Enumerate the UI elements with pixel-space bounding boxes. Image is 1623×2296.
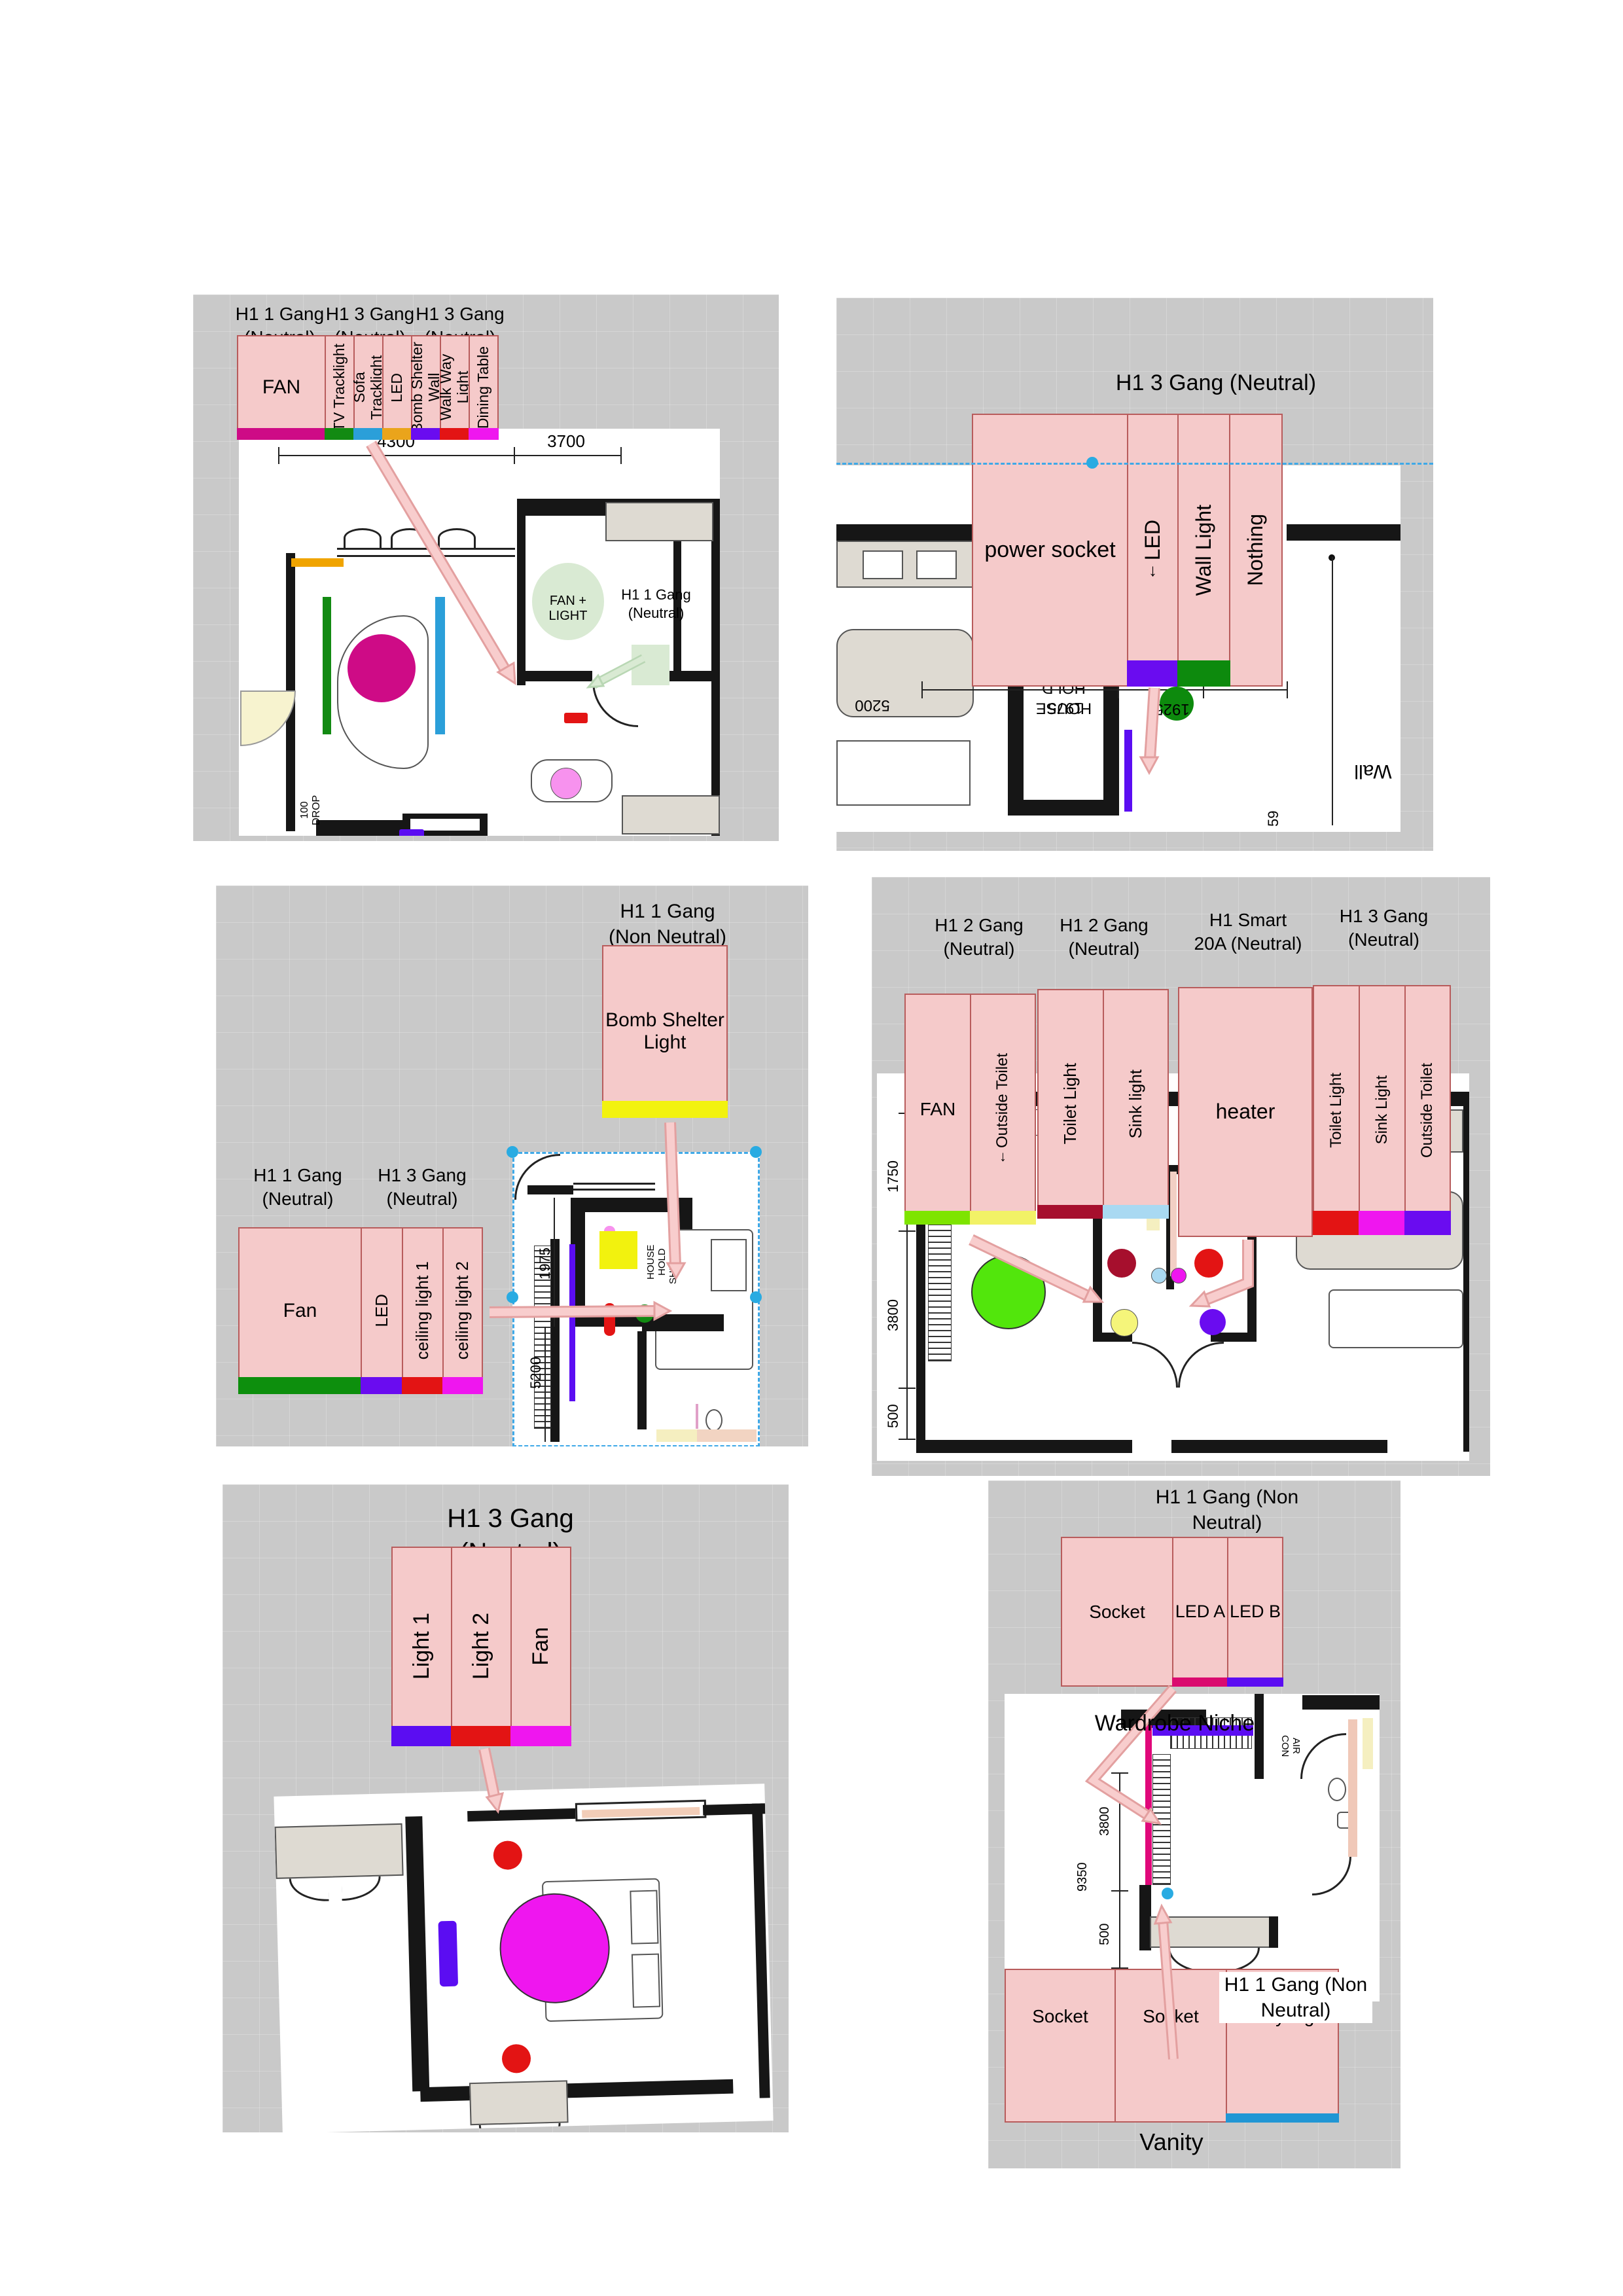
dim-5200: 5200 bbox=[843, 696, 902, 714]
gang-label: Sofa Tracklight bbox=[351, 340, 385, 435]
gang-label: heater bbox=[1216, 1100, 1275, 1124]
switch-box-heater: heater bbox=[1178, 987, 1313, 1237]
furniture-desk bbox=[1150, 1916, 1275, 1948]
gang-note-label: H1 1 Gang (Neutral) bbox=[609, 586, 704, 622]
gang-label: Nothing bbox=[1244, 514, 1268, 586]
gang-color-bar bbox=[1037, 1205, 1104, 1219]
gang-color-bar bbox=[237, 428, 326, 440]
gang-fan[interactable]: Fan bbox=[510, 1547, 571, 1746]
gang-color-bar bbox=[904, 1211, 971, 1225]
gang-label: Dining Table bbox=[475, 346, 492, 429]
drop-label: 100 DROP bbox=[299, 785, 325, 834]
dimension-tick bbox=[1287, 681, 1288, 698]
selection-guide-line[interactable] bbox=[836, 463, 1433, 465]
group-title: H1 3 Gang (Neutral) bbox=[363, 1164, 481, 1211]
furniture-console bbox=[469, 2080, 569, 2125]
appliance bbox=[916, 550, 957, 579]
gang-socket[interactable]: Socket bbox=[1061, 1537, 1173, 1687]
wall-label: Wall bbox=[1347, 760, 1399, 782]
dimension-tick bbox=[620, 447, 622, 464]
marker-magenta-circle[interactable] bbox=[348, 634, 416, 702]
gang-walk-way-light[interactable]: Walk Way Light bbox=[440, 335, 470, 440]
gang-label: Socket bbox=[1089, 1602, 1145, 1622]
group-title-text: H1 1 Gang (Non Neutral) bbox=[1219, 1972, 1372, 2023]
window-band bbox=[337, 548, 515, 557]
gang-label: Walk Way Light bbox=[438, 340, 472, 435]
down-arrow-icon: ↓ bbox=[1149, 560, 1157, 581]
panel-vanity: H1 1 Gang (Non Neutral) Socket LED A LED… bbox=[988, 1480, 1400, 2168]
marker-yellow-square[interactable] bbox=[599, 1231, 637, 1269]
gang-label: FAN bbox=[262, 376, 300, 399]
marker-purple-bar[interactable] bbox=[1124, 730, 1132, 812]
gang-label: Sink Light bbox=[1374, 1075, 1391, 1144]
gang-label: LED bbox=[372, 1294, 391, 1327]
selection-handle[interactable] bbox=[750, 1291, 762, 1303]
gang-label: power socket bbox=[984, 537, 1115, 562]
gang-toilet-light[interactable]: Toilet Light bbox=[1037, 989, 1104, 1219]
fixture-toilet bbox=[705, 1409, 722, 1431]
switch-box-d: Toilet Light Sink Light Outside Toilet bbox=[1313, 985, 1451, 1235]
marker-red-circle[interactable] bbox=[501, 2044, 531, 2073]
dimension-line bbox=[278, 455, 622, 456]
gang-label: LED bbox=[389, 373, 406, 403]
door-arc bbox=[1132, 1342, 1178, 1388]
floor-plan: 4300 3700 FAN + LIGHT H1 1 Gang (Neutr bbox=[239, 429, 720, 836]
dim-5200: 5200 bbox=[527, 1337, 547, 1409]
selection-handle[interactable] bbox=[507, 1146, 518, 1158]
marker-yellow-circle[interactable] bbox=[1111, 1309, 1138, 1336]
curtain-arc bbox=[525, 2123, 562, 2132]
switch-box-top: Socket LED A LED B bbox=[1061, 1537, 1283, 1687]
wall bbox=[563, 2079, 733, 2098]
gang-sofa-tracklight[interactable]: Sofa Tracklight bbox=[353, 335, 383, 440]
gang-power-socket[interactable]: power socket bbox=[972, 414, 1128, 687]
gang-fan[interactable]: FAN bbox=[904, 994, 971, 1225]
window-arc bbox=[391, 528, 429, 548]
dim-1975: 1975 bbox=[1036, 698, 1095, 717]
marker-blue-dot[interactable] bbox=[1162, 1888, 1173, 1899]
marker-purple-circle[interactable] bbox=[1200, 1309, 1226, 1335]
marker-red-circle[interactable] bbox=[493, 1840, 522, 1870]
furniture-bed bbox=[1329, 1289, 1463, 1348]
marker-lightblue-circle[interactable] bbox=[1151, 1268, 1167, 1283]
gang-label: Toilet Light bbox=[1328, 1073, 1346, 1148]
window-arc bbox=[344, 528, 382, 548]
gang-label: Socket bbox=[1032, 2006, 1088, 2026]
gang-label: Wall Light bbox=[1192, 505, 1216, 596]
marker-purple-bar[interactable] bbox=[569, 1244, 575, 1401]
bathroom-strip bbox=[1348, 1719, 1357, 1857]
group-title: H1 3 Gang (Neutral) bbox=[1095, 368, 1337, 397]
gang-color-bar bbox=[442, 1377, 483, 1394]
furniture-pillow bbox=[711, 1239, 747, 1291]
gang-color-bar bbox=[361, 1377, 403, 1394]
dim-3800: 3800 bbox=[885, 1283, 903, 1348]
wall bbox=[517, 499, 526, 685]
gang-color-bar bbox=[1172, 1677, 1228, 1687]
dim-500: 500 bbox=[885, 1397, 903, 1435]
group-title: H1 3 Gang (Neutral) bbox=[1327, 905, 1441, 952]
gang-label: Socket bbox=[1143, 2006, 1199, 2026]
floor-plan-selected[interactable]: HOUSE HOLD SHELTER 1975 5200 bbox=[512, 1152, 760, 1446]
dim-59: 59 bbox=[1265, 802, 1286, 832]
furniture-cabinet bbox=[836, 740, 971, 806]
panel-bedroom3: H1 2 Gang (Neutral) H1 2 Gang (Neutral) … bbox=[872, 877, 1490, 1476]
dimension-tick bbox=[899, 1439, 916, 1440]
wall bbox=[1302, 1695, 1380, 1710]
group-title: H1 Smart 20A (Neutral) bbox=[1186, 908, 1310, 956]
gang-sink-light[interactable]: Sink light bbox=[1103, 989, 1169, 1219]
gang-toilet-light-2[interactable]: Toilet Light bbox=[1313, 985, 1360, 1235]
switch-box: power socket LED ↓ Wall Light Nothing bbox=[972, 414, 1283, 687]
gang-label: Bomb Shelter Light bbox=[605, 1009, 724, 1053]
switch-box: FAN TV Tracklight Sofa Tracklight LED Bo… bbox=[237, 335, 499, 440]
marker-green-bar[interactable] bbox=[323, 597, 331, 734]
furniture-pillow bbox=[630, 1890, 658, 1945]
aircon-label: AIR CON bbox=[1279, 1720, 1302, 1772]
panel-living-room: H1 1 Gang (Neutral) H1 3 Gang (Neutral) … bbox=[193, 295, 779, 841]
marker-magenta-circle[interactable] bbox=[1171, 1268, 1186, 1283]
marker-maroon-circle[interactable] bbox=[1107, 1249, 1136, 1278]
gang-label: Light 1 bbox=[409, 1613, 434, 1679]
gang-color-bar bbox=[1103, 1205, 1169, 1219]
gang-ceiling-light-2[interactable]: ceiling light 2 bbox=[442, 1227, 483, 1394]
gang-label: LED A bbox=[1175, 1602, 1226, 1621]
dimension-tick bbox=[278, 447, 279, 464]
door-arc bbox=[1312, 1856, 1351, 1895]
wall bbox=[1255, 1694, 1264, 1779]
gang-color-bar bbox=[1227, 1677, 1283, 1687]
bathroom-strip-yellow bbox=[1363, 1718, 1373, 1769]
page: H1 1 Gang (Neutral) H1 3 Gang (Neutral) … bbox=[0, 0, 1623, 2296]
wall bbox=[405, 1816, 429, 2092]
group-title-bottom: H1 1 Gang (Non Neutral) bbox=[1198, 1946, 1394, 2023]
curtain-arc bbox=[479, 2124, 516, 2132]
switch-box: Fan LED ceiling light 1 ceiling light 2 bbox=[238, 1227, 483, 1394]
gang-heater[interactable]: heater bbox=[1178, 987, 1313, 1237]
gang-color-bar bbox=[1404, 1211, 1451, 1235]
dimension-line bbox=[921, 689, 1288, 691]
panel-entry: H1 3 Gang (Neutral) HOUSE HOLD SHELTER 1… bbox=[836, 298, 1433, 851]
gang-color-bar bbox=[353, 428, 383, 440]
gang-label: LED bbox=[1141, 520, 1165, 560]
door-arc bbox=[514, 1154, 560, 1200]
door-arc bbox=[592, 681, 638, 727]
gang-label: Fan bbox=[283, 1300, 317, 1322]
window-arc bbox=[438, 528, 476, 548]
wall bbox=[642, 1314, 724, 1331]
gang-label: FAN bbox=[920, 1099, 955, 1119]
dimension-tick bbox=[899, 1230, 916, 1232]
group-title: H1 2 Gang (Neutral) bbox=[927, 914, 1031, 961]
dimension-tick bbox=[921, 681, 923, 698]
dimension-tick bbox=[1111, 1890, 1128, 1892]
dim-1925: 1925 bbox=[1143, 700, 1202, 718]
switch-box: Light 1 Light 2 Fan bbox=[391, 1547, 571, 1746]
dimension-tick bbox=[514, 447, 515, 464]
gang-color-bar bbox=[1226, 2113, 1339, 2123]
gang-fan[interactable]: Fan bbox=[238, 1227, 362, 1394]
window-band bbox=[573, 1183, 655, 1191]
marker-purple-rect[interactable] bbox=[399, 829, 424, 836]
gang-sink-light-2[interactable]: Sink Light bbox=[1359, 985, 1406, 1235]
gang-color-bar bbox=[391, 1726, 452, 1746]
gang-light-2[interactable]: Light 2 bbox=[451, 1547, 512, 1746]
gang-color-bar bbox=[411, 428, 441, 440]
gang-label: TV Tracklight bbox=[331, 344, 348, 431]
gang-label: ceiling light 1 bbox=[413, 1261, 432, 1359]
gang-outside-toilet[interactable]: Outside Toilet ↓ bbox=[970, 994, 1036, 1225]
shelter-label: HOUSE HOLD SHELTER bbox=[645, 1219, 668, 1304]
gang-color-bar bbox=[602, 1101, 728, 1118]
selection-handle[interactable] bbox=[507, 1291, 518, 1303]
gang-outside-toilet-2[interactable]: Outside Toilet bbox=[1404, 985, 1451, 1235]
group-title: H1 1 Gang (Neutral) bbox=[239, 1164, 357, 1211]
fixture-divider bbox=[696, 1404, 698, 1429]
gang-color-bar bbox=[510, 1726, 571, 1746]
gang-label: Light 2 bbox=[469, 1613, 493, 1679]
floor-plan bbox=[274, 1784, 773, 2132]
panel-bedroom2: H1 1 Gang (Non Neutral) Bomb Shelter Lig… bbox=[216, 886, 808, 1446]
gang-led-a[interactable]: LED A bbox=[1172, 1537, 1228, 1687]
dim-3800: 3800 bbox=[1097, 1792, 1115, 1851]
gang-led[interactable]: LED bbox=[361, 1227, 403, 1394]
furniture-kitchen bbox=[622, 795, 720, 834]
gang-color-bar bbox=[238, 1377, 362, 1394]
gang-note-box[interactable] bbox=[632, 645, 669, 685]
fan-light-label: FAN + LIGHT bbox=[532, 594, 604, 624]
group-title: H1 1 Gang (Non Neutral) bbox=[582, 899, 753, 950]
marker-orange-bar[interactable] bbox=[291, 558, 344, 567]
gang-label: Outside Toilet bbox=[1419, 1063, 1436, 1158]
gang-bomb-shelter-light[interactable]: Bomb Shelter Light bbox=[602, 945, 728, 1118]
gang-color-bar bbox=[970, 1211, 1036, 1225]
group-title: H1 2 Gang (Neutral) bbox=[1052, 914, 1156, 961]
gang-color-bar bbox=[325, 428, 355, 440]
furniture-wardrobe-left bbox=[1152, 1754, 1171, 1885]
gang-label: Fan bbox=[528, 1627, 553, 1666]
gang-color-bar bbox=[1313, 1211, 1360, 1235]
gang-color-bar bbox=[469, 428, 499, 440]
dimension-tick bbox=[1111, 1772, 1128, 1774]
counter-pink bbox=[697, 1429, 757, 1442]
gang-color-bar bbox=[1177, 660, 1230, 687]
curtain-arc bbox=[289, 1878, 329, 1903]
gang-color-bar bbox=[1127, 660, 1179, 687]
gang-label: ceiling light 2 bbox=[453, 1261, 472, 1359]
dim-3700: 3700 bbox=[527, 431, 605, 452]
selection-handle[interactable] bbox=[1086, 457, 1098, 469]
wall bbox=[836, 524, 972, 541]
marker-magenta-bar[interactable] bbox=[1145, 1725, 1152, 1885]
gang-nothing[interactable]: Nothing bbox=[1229, 414, 1283, 687]
dim-1750: 1750 bbox=[885, 1145, 903, 1208]
vanity-caption: Vanity bbox=[1106, 2128, 1237, 2156]
furniture-headboard bbox=[605, 502, 713, 541]
wall bbox=[1287, 524, 1400, 541]
wardrobe-niche-label: Wardrobe Niche bbox=[1073, 1711, 1276, 1736]
selection-handle[interactable] bbox=[750, 1146, 762, 1158]
gang-label: LED B bbox=[1230, 1602, 1281, 1621]
marker-red-bar[interactable] bbox=[604, 1303, 615, 1336]
furniture-cabinet bbox=[275, 1823, 404, 1879]
gang-wall-light[interactable]: Wall Light bbox=[1177, 414, 1230, 687]
switch-box-b: Toilet Light Sink light bbox=[1037, 989, 1169, 1219]
panel-master-bedroom: H1 3 Gang (Neutral) Light 1 Light 2 Fan bbox=[223, 1484, 789, 2132]
gang-label: Toilet Light bbox=[1061, 1063, 1080, 1144]
marker-blue-bar[interactable] bbox=[435, 597, 445, 734]
down-arrow-icon: ↓ bbox=[999, 1148, 1007, 1165]
wall bbox=[711, 514, 720, 836]
gang-led-b[interactable]: LED B bbox=[1227, 1537, 1283, 1687]
gang-dining-table[interactable]: Dining Table bbox=[469, 335, 499, 440]
door-arc bbox=[1300, 1733, 1346, 1779]
furniture-pillow bbox=[632, 1954, 660, 2008]
dimension-tick bbox=[899, 1388, 916, 1389]
marker-purple-bar[interactable] bbox=[438, 1921, 458, 1987]
wall bbox=[637, 1331, 647, 1429]
dim-9350: 9350 bbox=[1075, 1844, 1092, 1910]
dimension-line bbox=[1119, 1772, 1120, 1969]
gang-label: Sink light bbox=[1126, 1069, 1145, 1139]
wall bbox=[467, 1808, 575, 1821]
gang-color-bar bbox=[451, 1726, 512, 1746]
wall bbox=[916, 1440, 1132, 1453]
gang-color-bar bbox=[402, 1377, 444, 1394]
gang-color-bar bbox=[440, 428, 470, 440]
wall bbox=[1269, 1916, 1278, 1948]
group-title: H1 1 Gang (Non Neutral) bbox=[1129, 1484, 1325, 1535]
gang-color-bar bbox=[1359, 1211, 1406, 1235]
marker-pink-circle[interactable] bbox=[550, 768, 582, 799]
wall bbox=[517, 671, 592, 681]
fixture-toilet bbox=[1328, 1778, 1346, 1801]
gang-socket-1[interactable]: Socket bbox=[1005, 1969, 1116, 2123]
gang-ceiling-light-1[interactable]: ceiling light 1 bbox=[402, 1227, 444, 1394]
marker-red-rect[interactable] bbox=[564, 713, 588, 723]
appliance bbox=[863, 550, 903, 579]
gang-color-bar bbox=[382, 428, 412, 440]
counter-yellow bbox=[656, 1429, 697, 1442]
marker-green-circle[interactable] bbox=[635, 1304, 654, 1323]
curtain-arc bbox=[342, 1876, 382, 1901]
marker-red-circle[interactable] bbox=[1194, 1249, 1223, 1278]
toilet-strip bbox=[1170, 1172, 1177, 1276]
wall bbox=[752, 1803, 770, 2098]
dim-500: 500 bbox=[1097, 1916, 1115, 1952]
switch-box-a: FAN Outside Toilet ↓ bbox=[904, 994, 1036, 1225]
wall bbox=[1171, 1440, 1387, 1453]
marker-green-circle[interactable] bbox=[971, 1255, 1046, 1329]
wall bbox=[1463, 1092, 1469, 1452]
gang-label: Outside Toilet bbox=[994, 1053, 1012, 1148]
dim-1975: 1975 bbox=[537, 1232, 556, 1295]
dimension-line bbox=[1332, 557, 1333, 825]
gang-fan[interactable]: FAN bbox=[237, 335, 326, 440]
door-arc bbox=[1178, 1342, 1224, 1388]
gang-light-1[interactable]: Light 1 bbox=[391, 1547, 452, 1746]
gang-led[interactable]: LED ↓ bbox=[1127, 414, 1179, 687]
